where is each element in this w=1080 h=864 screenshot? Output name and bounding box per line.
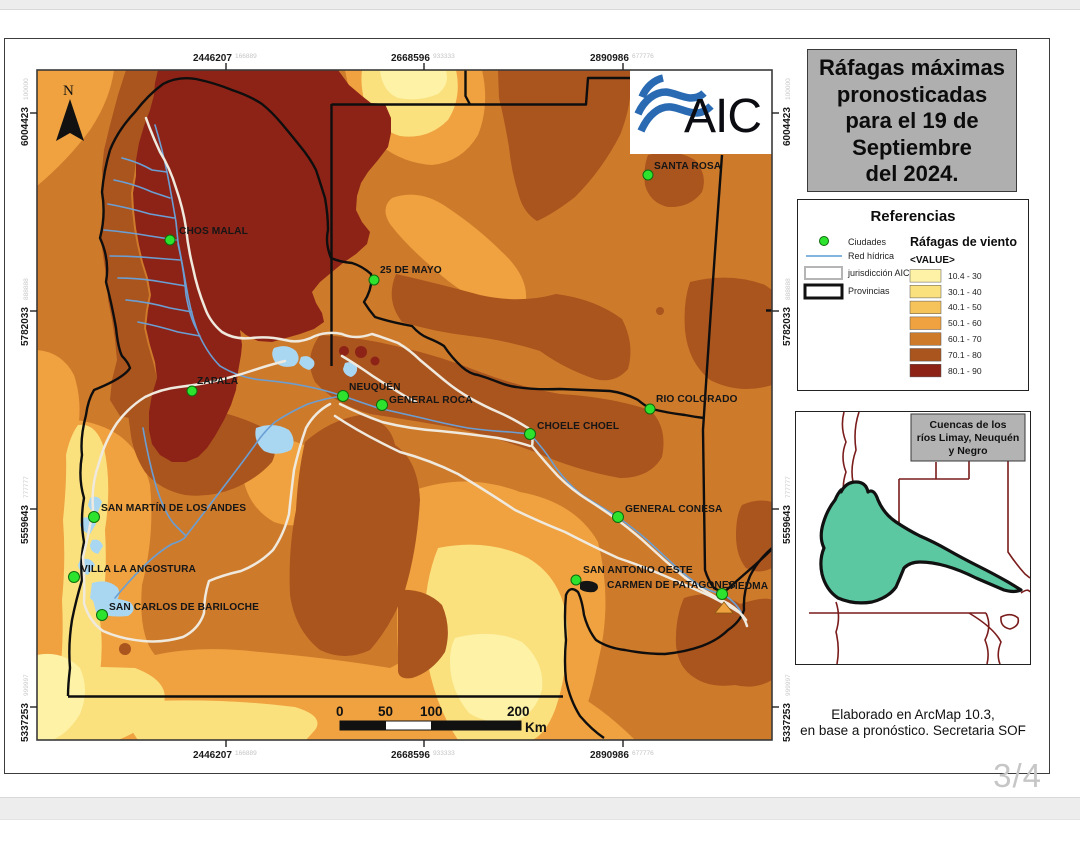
svg-text:Ciudades: Ciudades	[848, 237, 887, 247]
svg-text:2890986: 2890986	[590, 53, 629, 64]
svg-text:GENERAL ROCA: GENERAL ROCA	[389, 395, 473, 406]
svg-text:CARMEN DE PATAGONES: CARMEN DE PATAGONES	[607, 580, 736, 591]
svg-text:166889: 166889	[235, 750, 257, 757]
svg-text:5559643: 5559643	[20, 505, 31, 544]
svg-text:SAN MARTÍN DE LOS ANDES: SAN MARTÍN DE LOS ANDES	[101, 501, 246, 514]
svg-text:60.1 - 70: 60.1 - 70	[948, 334, 982, 344]
svg-text:100000: 100000	[785, 78, 792, 100]
svg-text:888888: 888888	[785, 278, 792, 300]
svg-text:6004423: 6004423	[782, 107, 793, 146]
svg-text:2890986: 2890986	[590, 750, 629, 761]
svg-text:GENERAL CONESA: GENERAL CONESA	[625, 504, 723, 515]
svg-text:<VALUE>: <VALUE>	[910, 255, 955, 266]
svg-text:CHOS MALAL: CHOS MALAL	[179, 226, 248, 237]
svg-text:80.1 - 90: 80.1 - 90	[948, 366, 982, 376]
svg-text:5559643: 5559643	[782, 505, 793, 544]
svg-text:VILLA LA ANGOSTURA: VILLA LA ANGOSTURA	[81, 564, 197, 575]
svg-text:ríos Limay, Neuquén: ríos Limay, Neuquén	[917, 432, 1020, 444]
svg-text:999997: 999997	[785, 674, 792, 696]
svg-text:N: N	[63, 83, 74, 99]
svg-text:933333: 933333	[433, 53, 455, 60]
svg-text:888888: 888888	[23, 278, 30, 300]
svg-text:Provincias: Provincias	[848, 286, 890, 296]
svg-text:SAN CARLOS DE BARILOCHE: SAN CARLOS DE BARILOCHE	[109, 602, 259, 613]
svg-text:SANTA ROSA: SANTA ROSA	[654, 161, 722, 172]
svg-text:5782033: 5782033	[20, 307, 31, 346]
svg-text:Referencias: Referencias	[870, 208, 955, 225]
svg-text:777777: 777777	[785, 476, 792, 498]
svg-text:100: 100	[420, 704, 443, 719]
svg-text:166889: 166889	[235, 53, 257, 60]
svg-text:200: 200	[507, 704, 530, 719]
svg-text:933333: 933333	[433, 750, 455, 757]
svg-text:677776: 677776	[632, 53, 654, 60]
svg-text:Ráfagas de viento: Ráfagas de viento	[910, 235, 1017, 249]
svg-text:999997: 999997	[23, 674, 30, 696]
svg-text:0: 0	[336, 704, 344, 719]
svg-text:jurisdicción AIC: jurisdicción AIC	[847, 268, 910, 278]
svg-text:5782033: 5782033	[782, 307, 793, 346]
svg-text:25 DE MAYO: 25 DE MAYO	[380, 265, 442, 276]
svg-text:10.4 - 30: 10.4 - 30	[948, 271, 982, 281]
svg-text:677776: 677776	[632, 750, 654, 757]
svg-text:777777: 777777	[23, 476, 30, 498]
svg-text:50.1 - 60: 50.1 - 60	[948, 318, 982, 328]
svg-text:Cuencas de los: Cuencas de los	[929, 419, 1006, 431]
svg-text:CHOELE CHOEL: CHOELE CHOEL	[537, 421, 619, 432]
svg-text:2668596: 2668596	[391, 750, 430, 761]
svg-text:100000: 100000	[23, 78, 30, 100]
svg-text:40.1 - 50: 40.1 - 50	[948, 302, 982, 312]
svg-text:y Negro: y Negro	[948, 445, 987, 457]
svg-text:AIC: AIC	[684, 90, 761, 143]
svg-text:30.1 - 40: 30.1 - 40	[948, 287, 982, 297]
svg-text:SAN ANTONIO OESTE: SAN ANTONIO OESTE	[583, 565, 693, 576]
svg-text:2446207: 2446207	[193, 750, 232, 761]
svg-text:NEUQUÉN: NEUQUÉN	[349, 380, 401, 393]
svg-text:70.1 - 80: 70.1 - 80	[948, 350, 982, 360]
svg-text:2446207: 2446207	[193, 53, 232, 64]
svg-text:6004423: 6004423	[20, 107, 31, 146]
svg-text:RIO COLORADO: RIO COLORADO	[656, 394, 738, 405]
svg-text:50: 50	[378, 704, 393, 719]
svg-text:ZAPALA: ZAPALA	[197, 376, 239, 387]
svg-text:VIEDMA: VIEDMA	[728, 581, 769, 592]
svg-text:5337253: 5337253	[20, 703, 31, 742]
svg-text:Red hídrica: Red hídrica	[848, 251, 894, 261]
svg-text:Km: Km	[525, 720, 547, 735]
svg-text:2668596: 2668596	[391, 53, 430, 64]
